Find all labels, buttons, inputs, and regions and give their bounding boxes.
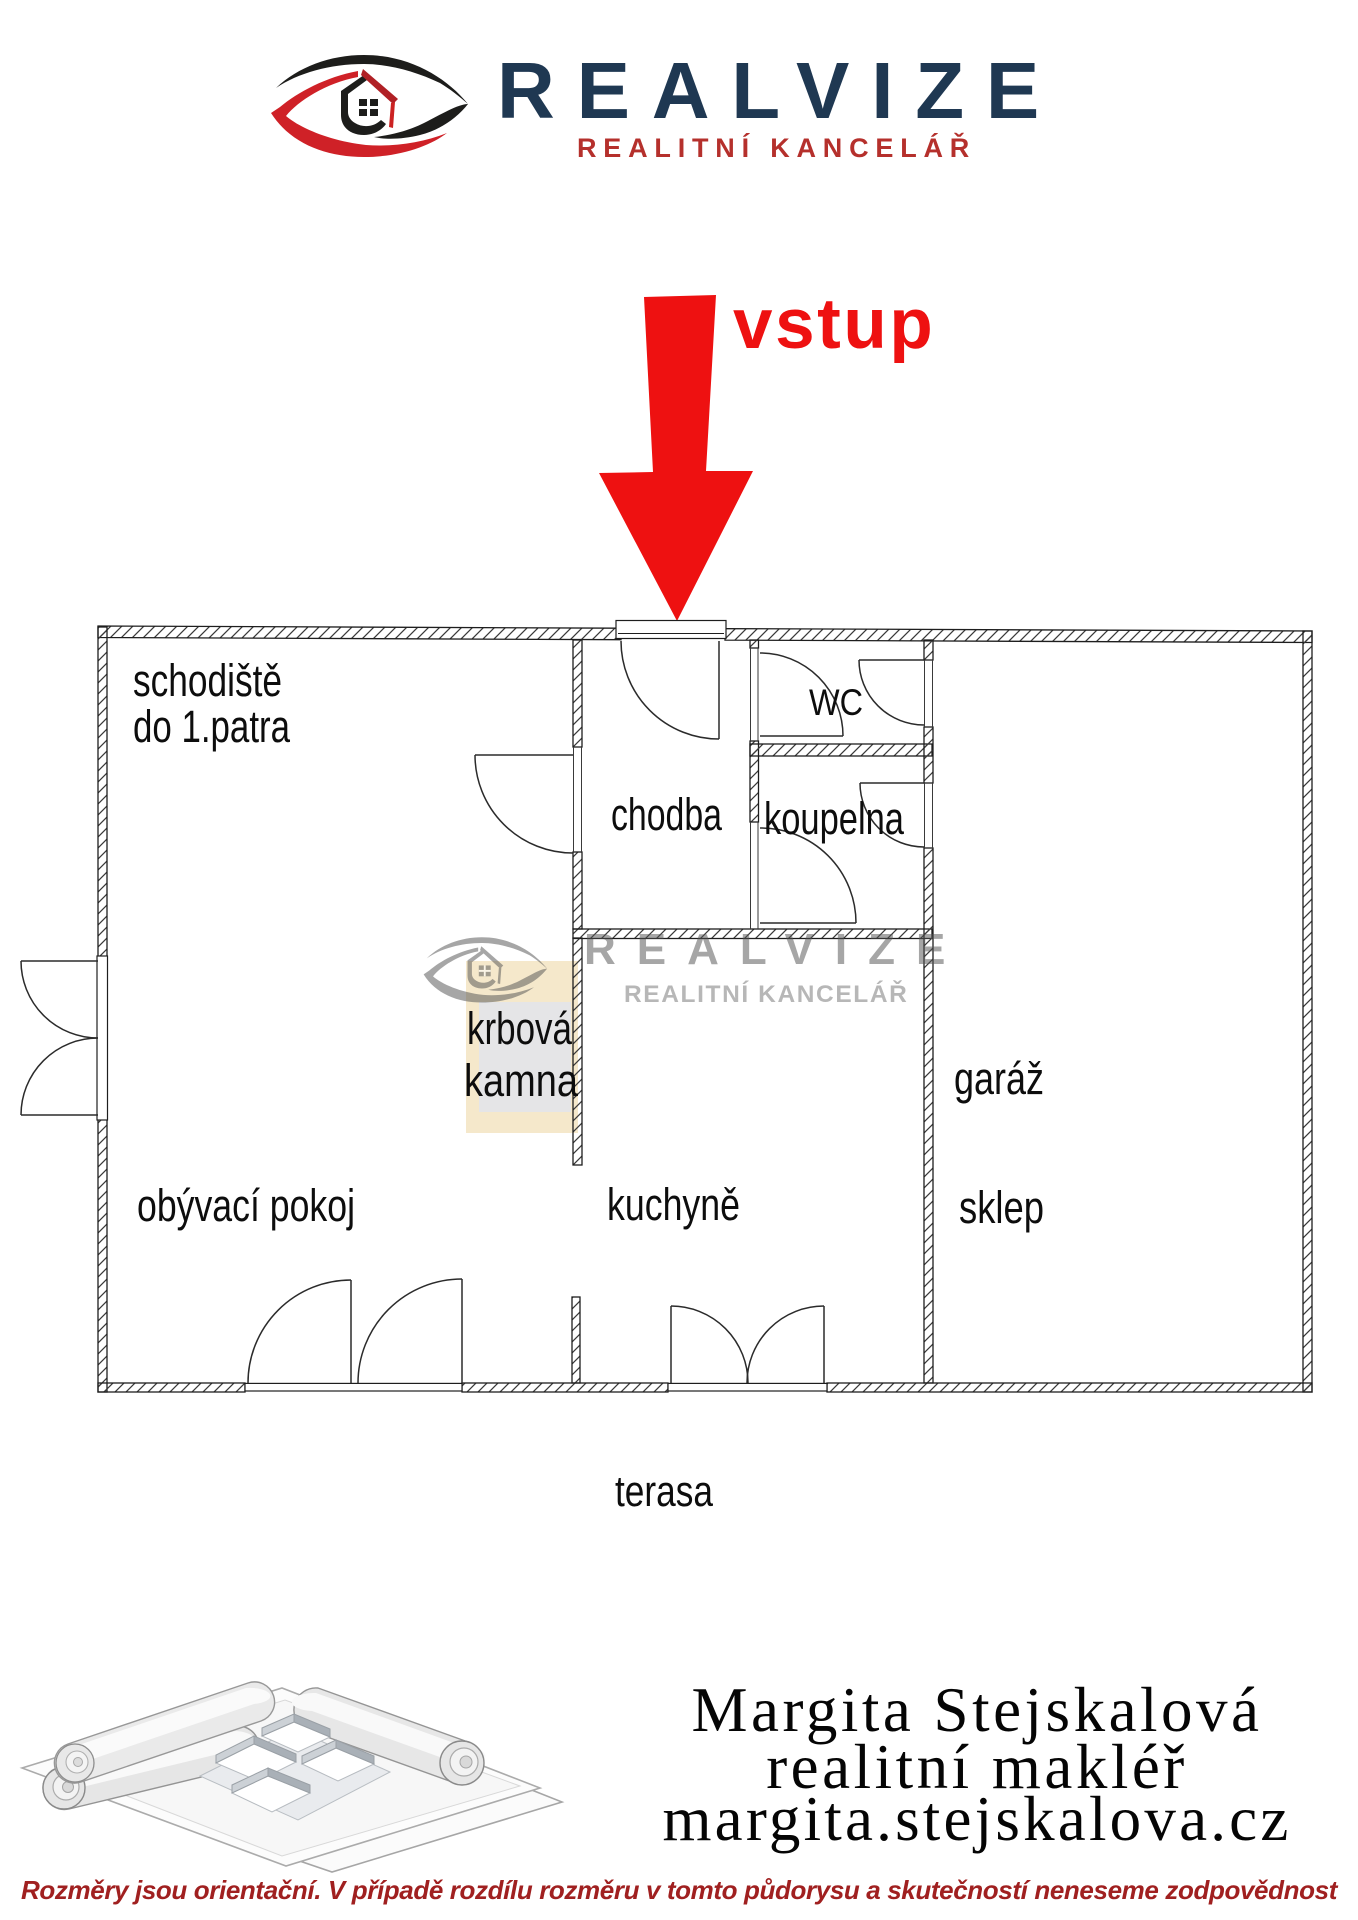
svg-text:koupelna: koupelna [764,793,905,844]
svg-text:Rozměry jsou orientační. V pří: Rozměry jsou orientační. V případě rozdí… [21,1875,1339,1905]
svg-text:REALVIZE: REALVIZE [584,925,966,974]
svg-text:terasa: terasa [615,1467,713,1516]
svg-text:garáž: garáž [954,1053,1044,1104]
svg-text:WC: WC [809,682,863,723]
svg-text:kuchyně: kuchyně [607,1179,740,1230]
svg-text:schodiště: schodiště [133,655,282,706]
svg-text:vstup: vstup [733,285,935,364]
svg-text:REALVIZE: REALVIZE [497,46,1061,135]
svg-text:chodba: chodba [611,789,723,840]
svg-text:krbová: krbová [467,1003,573,1054]
svg-text:REALITNÍ KANCELÁŘ: REALITNÍ KANCELÁŘ [624,980,908,1008]
svg-text:REALITNÍ KANCELÁŘ: REALITNÍ KANCELÁŘ [577,132,976,163]
svg-text:obývací pokoj: obývací pokoj [137,1180,355,1231]
svg-text:sklep: sklep [959,1182,1044,1233]
svg-text:do 1.patra: do 1.patra [133,701,291,752]
svg-text:kamna: kamna [464,1055,579,1106]
svg-text:margita.stejskalova.cz: margita.stejskalova.cz [662,1784,1291,1854]
